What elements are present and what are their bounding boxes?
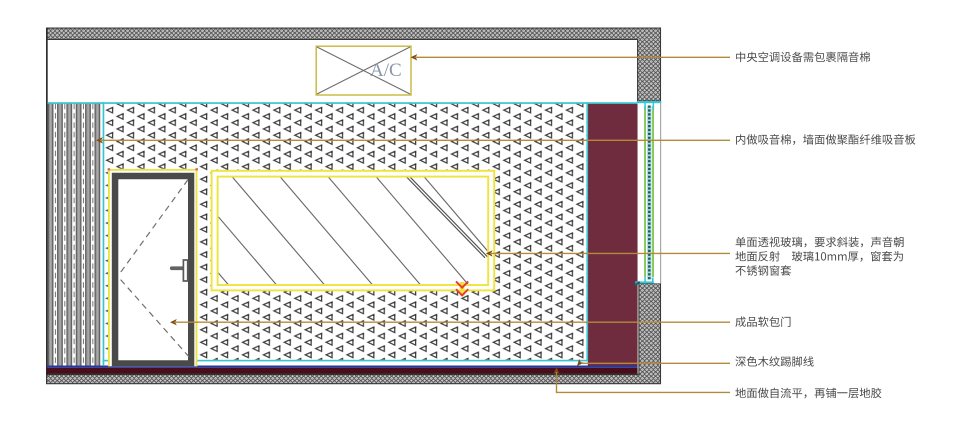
svg-text:A/C: A/C bbox=[370, 60, 402, 81]
